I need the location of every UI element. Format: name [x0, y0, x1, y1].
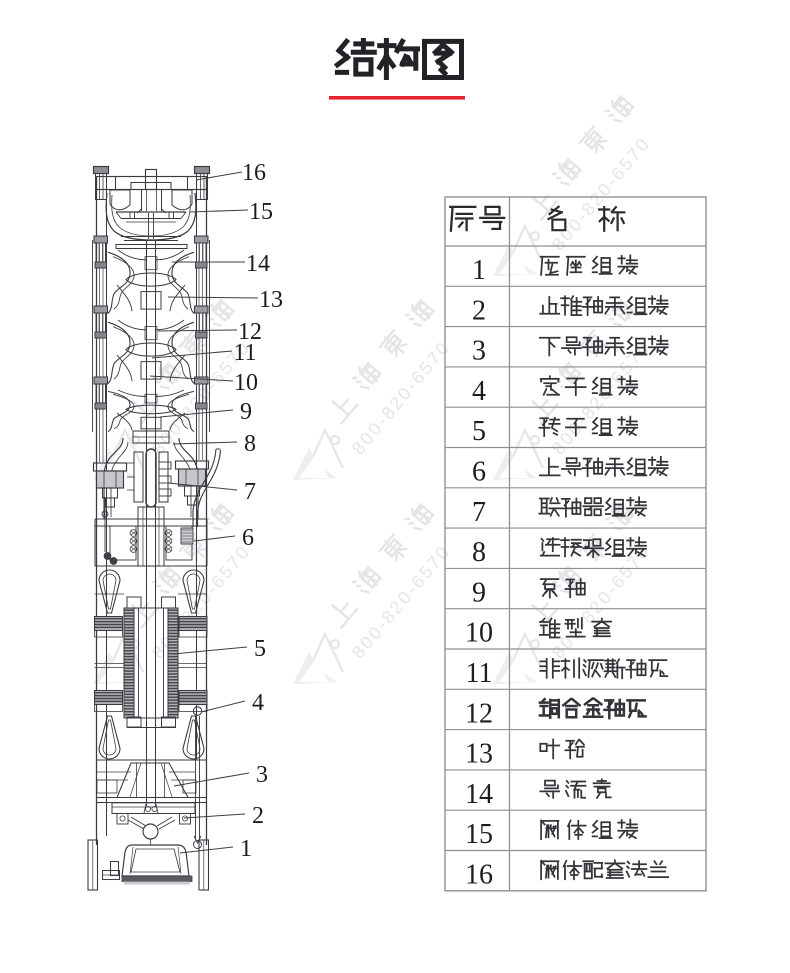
svg-text:4: 4 — [472, 376, 486, 407]
svg-text:13: 13 — [259, 287, 283, 313]
svg-text:8: 8 — [472, 537, 486, 568]
svg-text:15: 15 — [249, 199, 273, 225]
svg-text:2: 2 — [472, 295, 486, 326]
svg-text:3: 3 — [472, 336, 486, 367]
svg-text:5: 5 — [472, 416, 486, 447]
svg-text:2: 2 — [252, 803, 264, 829]
svg-text:8: 8 — [244, 431, 256, 457]
svg-text:15: 15 — [465, 819, 493, 850]
svg-text:3: 3 — [256, 762, 268, 788]
svg-text:9: 9 — [240, 399, 252, 425]
svg-text:12: 12 — [238, 319, 262, 345]
svg-text:7: 7 — [244, 479, 256, 505]
svg-text:6: 6 — [242, 525, 254, 551]
svg-text:1: 1 — [240, 836, 252, 862]
svg-text:7: 7 — [472, 497, 486, 528]
svg-text:11: 11 — [466, 658, 493, 689]
svg-text:12: 12 — [465, 698, 493, 729]
svg-text:4: 4 — [252, 690, 264, 716]
svg-text:5: 5 — [254, 636, 266, 662]
svg-text:10: 10 — [465, 618, 493, 649]
svg-text:9: 9 — [472, 577, 486, 608]
svg-text:16: 16 — [465, 860, 493, 891]
svg-text:1: 1 — [472, 255, 486, 286]
svg-text:16: 16 — [242, 160, 266, 186]
svg-text:14: 14 — [465, 779, 493, 810]
svg-text:10: 10 — [234, 370, 258, 396]
svg-text:6: 6 — [472, 457, 486, 488]
svg-text:13: 13 — [465, 739, 493, 770]
svg-text:14: 14 — [246, 251, 270, 277]
